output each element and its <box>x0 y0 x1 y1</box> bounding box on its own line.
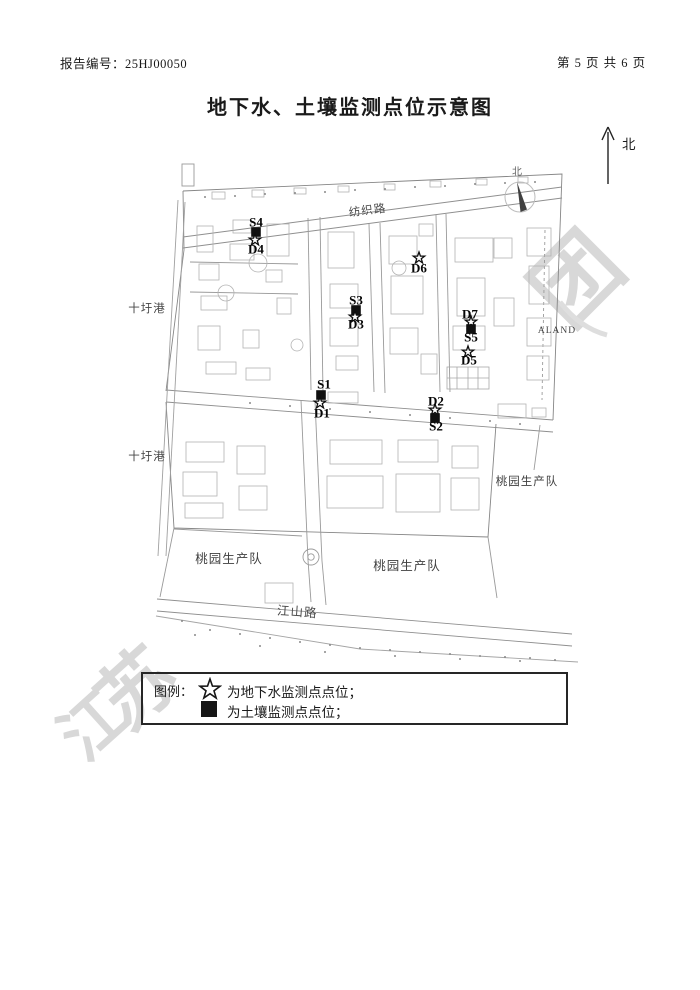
map-dots <box>181 181 556 662</box>
taoyuan-southwest-label: 桃园生产队 <box>195 551 263 566</box>
shiwei-port-north-label: 十圩港 <box>128 301 166 315</box>
legend-square-icon <box>201 701 217 717</box>
legend-soil-text: 为土壤监测点点位； <box>227 701 349 721</box>
point-label-D4: D4 <box>248 242 264 257</box>
legend-title: 图例： <box>154 681 193 700</box>
point-label-D3: D3 <box>348 317 364 332</box>
point-label-D1: D1 <box>314 406 330 421</box>
fangzhi-road-label: 纺织路 <box>348 201 387 219</box>
legend-star-icon <box>198 677 222 701</box>
watermark-char: 团 <box>513 215 642 344</box>
north-arrow-icon: 北 <box>602 127 636 184</box>
point-label-S1: S1 <box>317 377 331 392</box>
point-label-D6: D6 <box>411 261 427 276</box>
legend-box: 图例： 为地下水监测点点位； 为土壤监测点点位； <box>141 672 568 725</box>
point-label-D2: D2 <box>428 394 444 409</box>
document-page: 报告编号：25HJ00050 第 5 页 共 6 页 地下水、土壤监测点位示意图… <box>0 0 700 990</box>
north-arrow-label: 北 <box>622 137 636 152</box>
compass-north-label: 北 <box>512 166 522 178</box>
taoyuan-south-label: 桃园生产队 <box>373 558 441 573</box>
monitoring-points: S4D4D6S3D3D7S5D5S1D1D2S2 <box>248 215 478 434</box>
map-labels: 纺织路江山路十圩港十圩港ALAND桃园生产队桃园生产队桃园生产队 <box>128 201 576 621</box>
shiwei-port-south-label: 十圩港 <box>128 449 166 463</box>
site-plan-linework <box>156 164 578 662</box>
point-label-D7: D7 <box>462 307 478 322</box>
hatched-building <box>447 367 489 389</box>
point-label-D5: D5 <box>461 353 477 368</box>
jiangshan-road-label: 江山路 <box>277 603 318 621</box>
point-label-S3: S3 <box>349 293 363 308</box>
point-label-S5: S5 <box>464 330 478 345</box>
taoyuan-east-label: 桃园生产队 <box>496 474 559 488</box>
point-label-S4: S4 <box>249 215 263 230</box>
point-label-S2: S2 <box>429 419 443 434</box>
aland-label: ALAND <box>538 326 576 336</box>
site-map: 江苏团 <box>0 0 700 990</box>
legend-groundwater-text: 为地下水监测点点位； <box>227 681 362 701</box>
